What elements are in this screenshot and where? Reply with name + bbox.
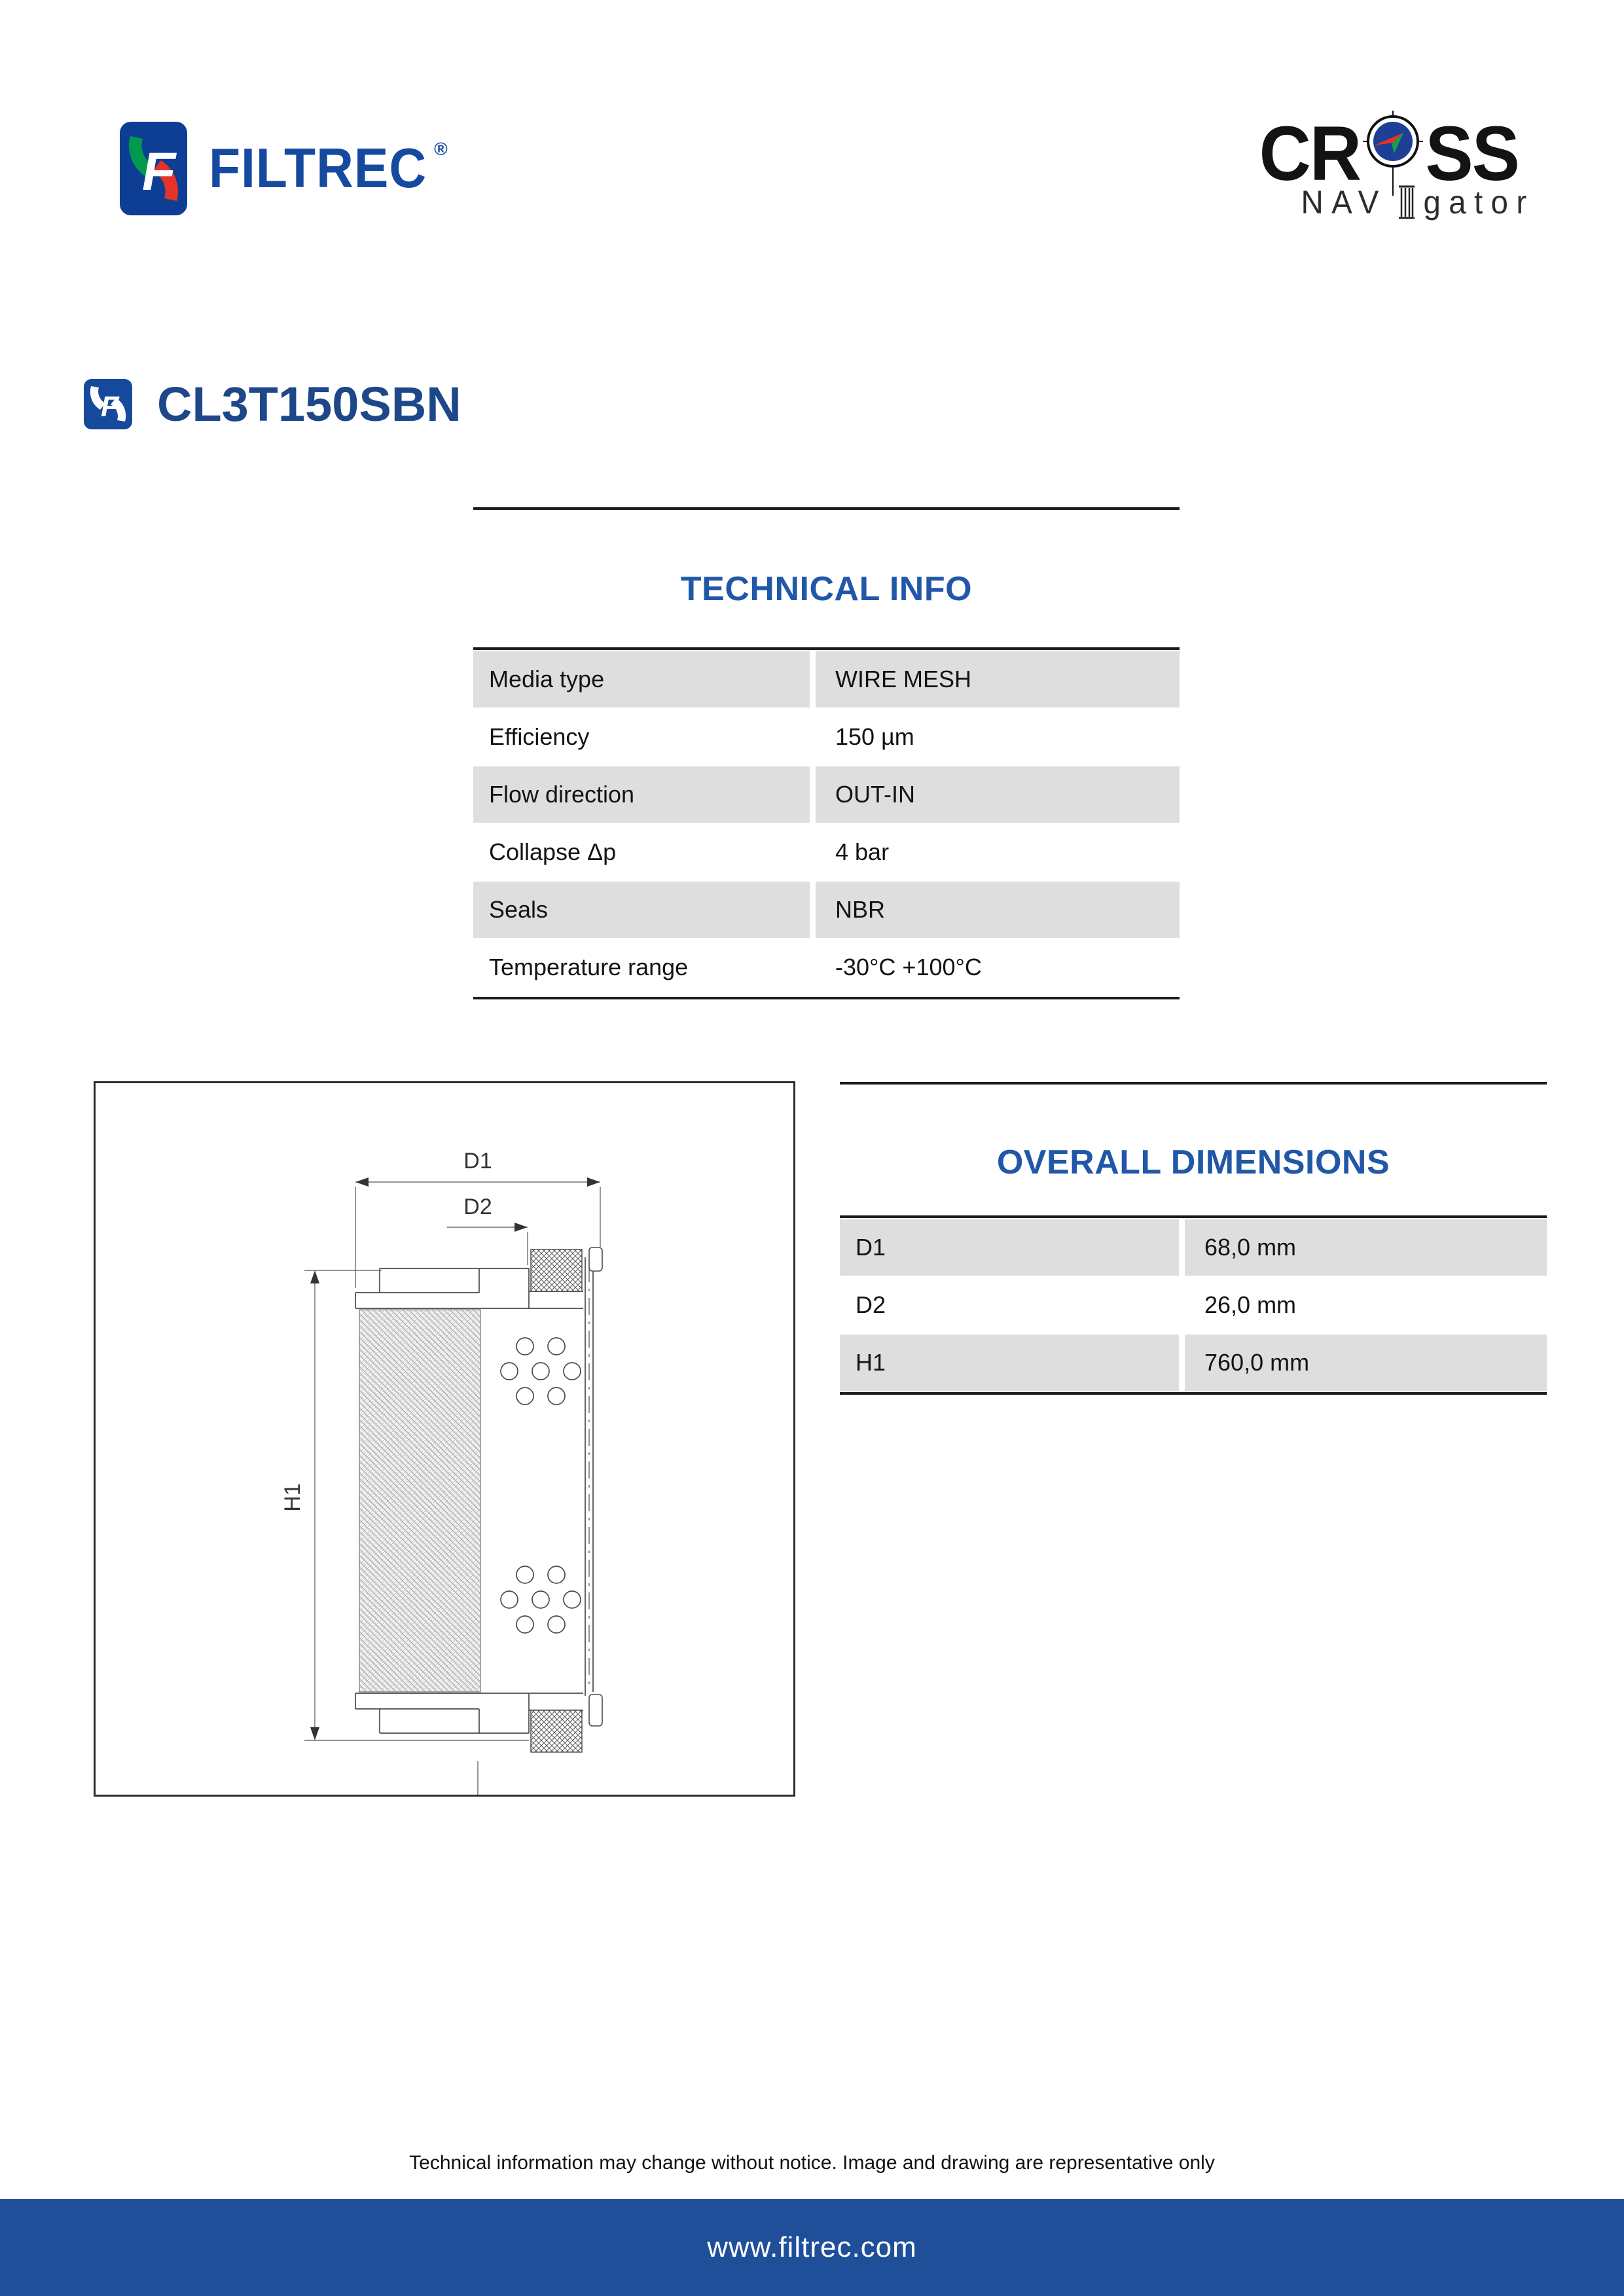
- table-row: H1 760,0 mm: [840, 1335, 1547, 1391]
- row-value: NBR: [816, 882, 1180, 938]
- table-row: Flow direction OUT-IN: [473, 766, 1180, 823]
- row-label: Collapse Δp: [473, 824, 810, 880]
- row-value: -30°C +100°C: [816, 939, 1180, 996]
- overall-dimensions-top-rule: [840, 1082, 1547, 1085]
- column-gap: [1179, 1335, 1185, 1391]
- navigator-text-gator: gator: [1424, 183, 1535, 221]
- column-gap: [810, 939, 816, 996]
- technical-info-heading: TECHNICAL INFO: [473, 569, 1180, 609]
- column-gap: [810, 709, 816, 765]
- datasheet-page: F FILTREC ® CR SS NAV: [0, 0, 1624, 2296]
- technical-info-table: Media type WIRE MESH Efficiency 150 µm F…: [473, 647, 1180, 999]
- column-gap: [810, 651, 816, 708]
- website-link[interactable]: www.filtrec.com: [707, 2231, 917, 2264]
- table-border-bottom: [473, 997, 1180, 999]
- column-gap: [810, 824, 816, 880]
- registered-trademark-icon: ®: [434, 139, 448, 160]
- product-code: CL3T150SBN: [157, 376, 461, 432]
- dimension-d2-label: D2: [463, 1194, 492, 1219]
- filter-element-drawing: D1 D2 H1: [96, 1083, 793, 1795]
- row-value: 26,0 mm: [1185, 1277, 1547, 1333]
- column-icon: [1398, 185, 1415, 219]
- row-label: D1: [840, 1219, 1179, 1276]
- row-value: 4 bar: [816, 824, 1180, 880]
- filtrec-logo: F FILTREC ®: [120, 122, 445, 215]
- table-border-bottom: [840, 1392, 1547, 1395]
- column-gap: [1179, 1277, 1185, 1333]
- row-value: 150 µm: [816, 709, 1180, 765]
- table-border-top: [840, 1215, 1547, 1218]
- table-row: D1 68,0 mm: [840, 1219, 1547, 1276]
- footer-bar: www.filtrec.com: [0, 2199, 1624, 2296]
- table-row: Media type WIRE MESH: [473, 651, 1180, 708]
- table-row: Seals NBR: [473, 882, 1180, 938]
- table-row: Collapse Δp 4 bar: [473, 824, 1180, 880]
- row-label: Efficiency: [473, 709, 810, 765]
- table-row: D2 26,0 mm: [840, 1277, 1547, 1333]
- column-gap: [810, 766, 816, 823]
- dimension-h1-label: H1: [280, 1483, 305, 1511]
- product-mini-logo-icon: F: [84, 379, 132, 429]
- cross-logo-row1: CR SS: [1258, 117, 1538, 190]
- row-label: Media type: [473, 651, 810, 708]
- navigator-text-nav: NAV: [1301, 183, 1386, 221]
- row-value: 760,0 mm: [1185, 1335, 1547, 1391]
- filtrec-wordmark: FILTREC: [209, 137, 427, 201]
- table-row: Temperature range -30°C +100°C: [473, 939, 1180, 996]
- technical-drawing-frame: D1 D2 H1: [94, 1081, 795, 1797]
- row-value: WIRE MESH: [816, 651, 1180, 708]
- row-label: Temperature range: [473, 939, 810, 996]
- table-row: Efficiency 150 µm: [473, 709, 1180, 765]
- cross-navigator-logo: CR SS NAV gator: [1258, 117, 1538, 221]
- row-label: Seals: [473, 882, 810, 938]
- dimension-d1-label: D1: [463, 1149, 492, 1174]
- table-border-top: [473, 647, 1180, 650]
- overall-dimensions-table: D1 68,0 mm D2 26,0 mm H1 760,0 mm: [840, 1215, 1547, 1395]
- row-label: Flow direction: [473, 766, 810, 823]
- row-value: OUT-IN: [816, 766, 1180, 823]
- product-title-block: F CL3T150SBN: [84, 376, 461, 432]
- row-value: 68,0 mm: [1185, 1219, 1547, 1276]
- filtrec-logo-icon: F: [120, 122, 187, 215]
- column-gap: [810, 882, 816, 938]
- row-label: H1: [840, 1335, 1179, 1391]
- disclaimer-text: Technical information may change without…: [0, 2152, 1624, 2174]
- overall-dimensions-heading: OVERALL DIMENSIONS: [840, 1143, 1547, 1182]
- row-label: D2: [840, 1277, 1179, 1333]
- column-gap: [1179, 1219, 1185, 1276]
- technical-info-top-rule: [473, 507, 1180, 510]
